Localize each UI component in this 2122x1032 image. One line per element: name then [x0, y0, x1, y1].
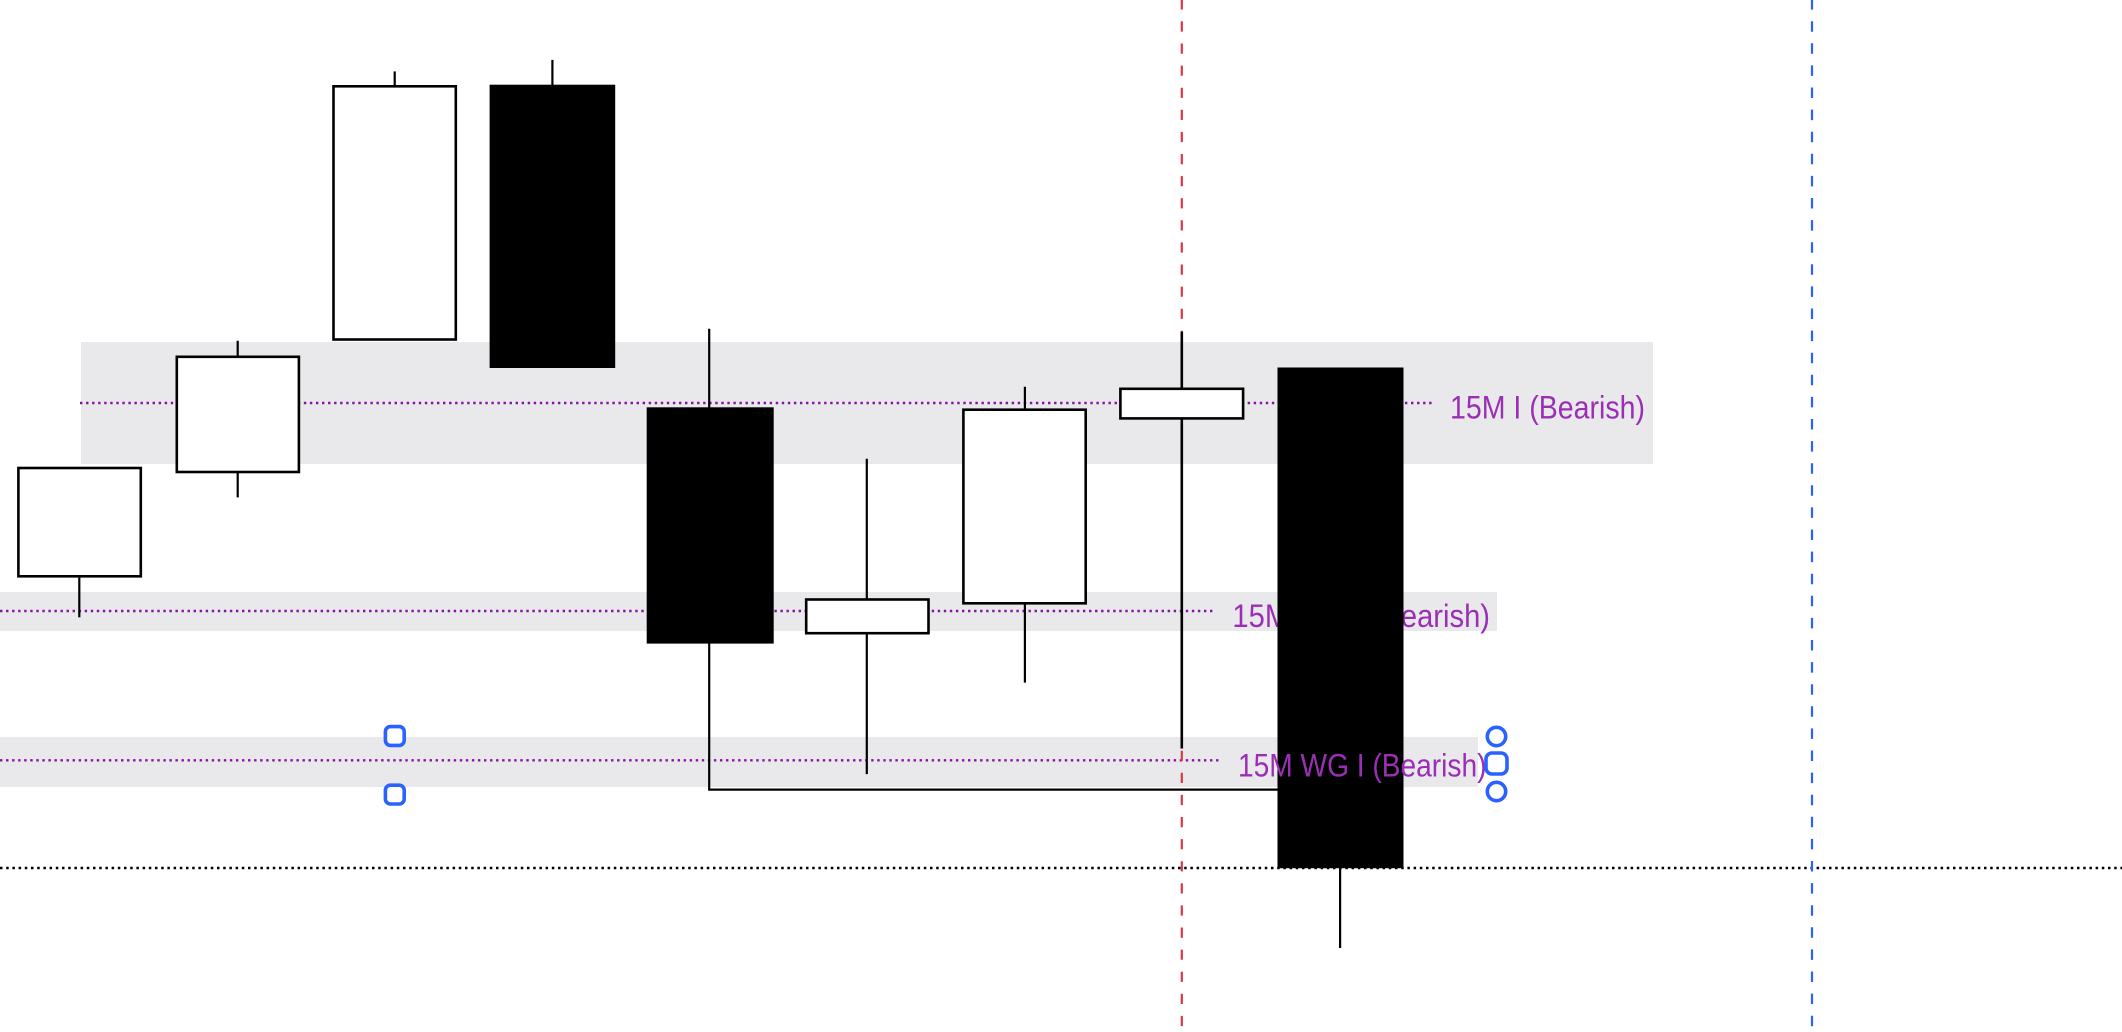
svg-text:15M WG I (Bearish): 15M WG I (Bearish) — [1238, 748, 1487, 784]
svg-text:15M I (Bearish): 15M I (Bearish) — [1450, 390, 1645, 426]
